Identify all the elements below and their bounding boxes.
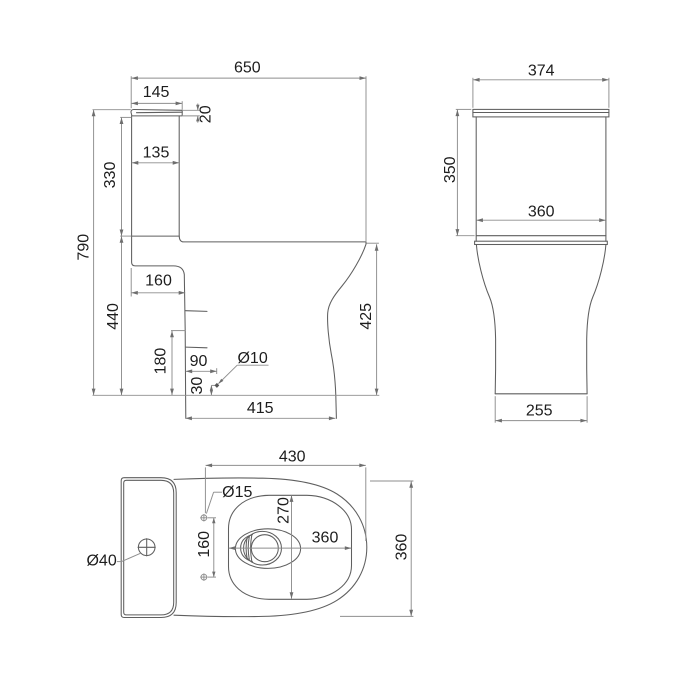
- svg-text:360: 360: [528, 204, 555, 221]
- svg-text:145: 145: [143, 84, 170, 101]
- svg-text:440: 440: [105, 303, 122, 330]
- svg-text:20: 20: [198, 105, 215, 123]
- svg-text:360: 360: [312, 530, 339, 547]
- svg-text:425: 425: [358, 303, 375, 330]
- svg-text:135: 135: [143, 145, 170, 162]
- svg-text:790: 790: [75, 234, 92, 261]
- svg-text:30: 30: [189, 377, 206, 395]
- svg-text:255: 255: [526, 402, 553, 419]
- svg-text:Ø40: Ø40: [86, 552, 116, 569]
- svg-text:Ø10: Ø10: [237, 350, 267, 367]
- svg-text:180: 180: [153, 348, 170, 375]
- svg-text:430: 430: [279, 449, 306, 466]
- svg-text:350: 350: [442, 156, 459, 183]
- svg-text:360: 360: [393, 534, 410, 561]
- svg-text:415: 415: [247, 400, 274, 417]
- svg-text:374: 374: [528, 62, 555, 79]
- svg-text:270: 270: [275, 497, 292, 524]
- svg-text:160: 160: [145, 273, 172, 290]
- svg-text:330: 330: [102, 162, 119, 189]
- svg-text:160: 160: [196, 531, 213, 558]
- svg-text:90: 90: [190, 353, 208, 370]
- svg-text:Ø15: Ø15: [222, 484, 252, 501]
- svg-text:650: 650: [234, 59, 261, 76]
